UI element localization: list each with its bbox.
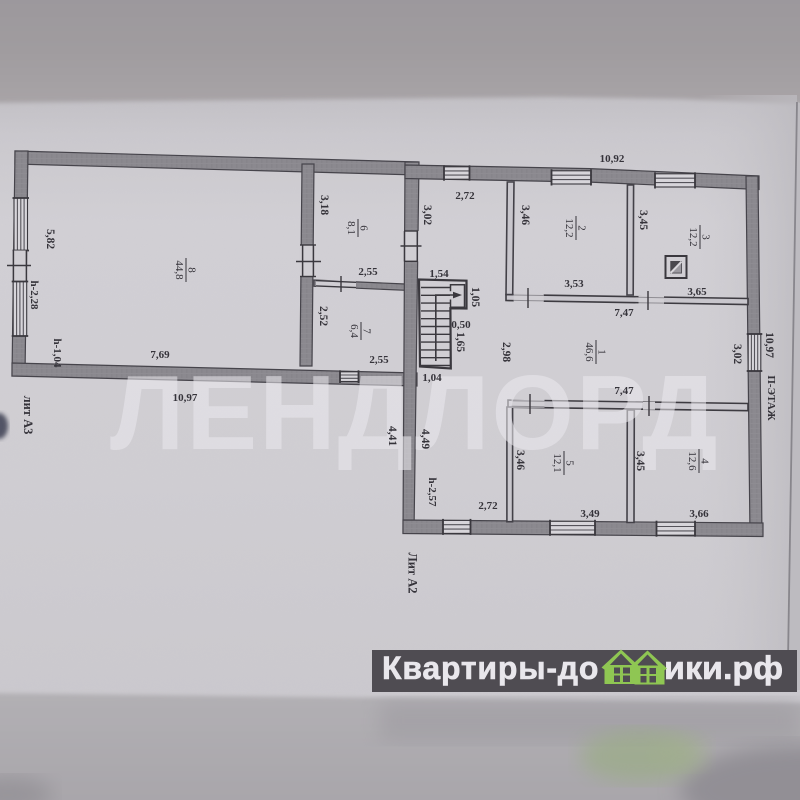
svg-text:8,1: 8,1 — [345, 221, 357, 235]
svg-text:П-ЭТАЖ: П-ЭТАЖ — [765, 375, 777, 420]
svg-text:2,55: 2,55 — [358, 266, 378, 278]
svg-text:2,72: 2,72 — [478, 500, 498, 512]
svg-text:1,05: 1,05 — [469, 287, 481, 307]
svg-text:6: 6 — [358, 225, 370, 231]
svg-text:2,52: 2,52 — [317, 306, 329, 326]
svg-text:12,2: 12,2 — [563, 218, 575, 237]
svg-text:10,92: 10,92 — [600, 153, 625, 165]
svg-text:46,6: 46,6 — [583, 342, 595, 362]
svg-text:h-2,57: h-2,57 — [426, 477, 438, 507]
svg-text:7,47: 7,47 — [614, 385, 634, 397]
svg-text:3,46: 3,46 — [519, 205, 531, 225]
svg-text:ЛЕНДЛОРД: ЛЕНДЛОРД — [110, 354, 720, 472]
svg-text:3,18: 3,18 — [318, 195, 330, 215]
svg-text:12,6: 12,6 — [686, 451, 698, 471]
svg-text:44,8: 44,8 — [173, 260, 185, 280]
svg-text:7,69: 7,69 — [150, 349, 170, 361]
svg-text:3,02: 3,02 — [421, 205, 433, 225]
svg-text:10,97: 10,97 — [763, 332, 775, 358]
svg-text:12,2: 12,2 — [687, 227, 699, 246]
svg-text:3: 3 — [700, 234, 712, 240]
svg-text:3,45: 3,45 — [634, 451, 646, 471]
svg-text:5,82: 5,82 — [44, 229, 56, 249]
svg-text:1,65: 1,65 — [454, 332, 466, 352]
svg-text:1: 1 — [596, 349, 608, 355]
svg-text:6,4: 6,4 — [348, 324, 360, 338]
svg-text:4: 4 — [699, 458, 711, 464]
svg-text:3,49: 3,49 — [580, 508, 600, 520]
svg-text:1,54: 1,54 — [429, 268, 449, 280]
svg-text:2: 2 — [576, 225, 588, 231]
svg-text:3,65: 3,65 — [687, 286, 707, 298]
svg-text:0,50: 0,50 — [451, 319, 471, 331]
svg-text:4,49: 4,49 — [419, 429, 431, 449]
svg-text:h-1,04: h-1,04 — [51, 338, 63, 368]
svg-text:7,47: 7,47 — [614, 307, 634, 319]
svg-text:4,41: 4,41 — [386, 426, 398, 446]
svg-text:3,53: 3,53 — [564, 278, 584, 290]
svg-text:8: 8 — [186, 267, 198, 273]
svg-text:2,55: 2,55 — [369, 354, 389, 366]
svg-text:3,66: 3,66 — [689, 508, 709, 520]
svg-text:Лит А2: Лит А2 — [406, 552, 420, 593]
svg-text:3,45: 3,45 — [637, 210, 649, 230]
svg-text:2,98: 2,98 — [500, 342, 512, 362]
svg-text:12,1: 12,1 — [551, 453, 563, 472]
svg-text:5: 5 — [564, 460, 576, 466]
svg-text:10,97: 10,97 — [173, 392, 198, 404]
svg-text:1,04: 1,04 — [422, 372, 442, 384]
svg-text:h-2,28: h-2,28 — [28, 280, 40, 310]
svg-text:3,02: 3,02 — [731, 344, 743, 364]
svg-text:3,46: 3,46 — [514, 450, 526, 470]
svg-text:лит А3: лит А3 — [21, 396, 35, 435]
svg-text:2,72: 2,72 — [455, 190, 475, 202]
svg-text:7: 7 — [361, 328, 373, 334]
